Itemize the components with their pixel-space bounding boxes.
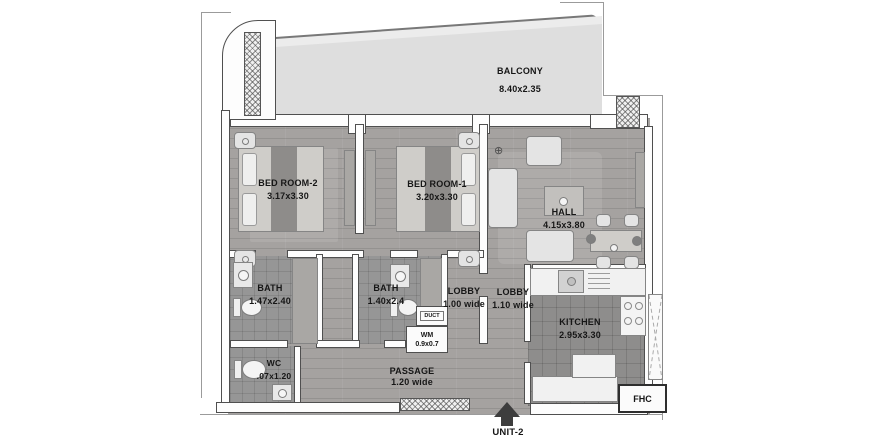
fhc-box: FHC bbox=[618, 384, 667, 413]
lobby2-label: LOBBY 1.10 wide bbox=[492, 287, 534, 310]
toilet-icon bbox=[233, 298, 241, 317]
entrance-mat bbox=[400, 398, 470, 411]
plant-icon bbox=[632, 236, 642, 246]
boundary-line bbox=[560, 2, 604, 3]
bedroom1-label: BED ROOM-1 3.20x3.30 bbox=[407, 179, 467, 202]
balcony-area bbox=[232, 14, 602, 118]
room-dims: 3.20x3.30 bbox=[407, 192, 467, 202]
room-dims: 3.17x3.30 bbox=[258, 191, 318, 201]
lobby1-label: LOBBY 1.00 wide bbox=[443, 286, 485, 309]
room-name: LOBBY bbox=[443, 286, 485, 296]
bedroom2-label: BED ROOM-2 3.17x3.30 bbox=[258, 178, 318, 201]
entrance-arrow-icon bbox=[494, 402, 520, 417]
room-name: BED ROOM-2 bbox=[258, 178, 318, 188]
duct-label: DUCT bbox=[420, 311, 443, 321]
sofa-icon bbox=[488, 168, 518, 228]
wall bbox=[355, 124, 364, 234]
kitchen-island bbox=[572, 354, 616, 378]
room-name: KITCHEN bbox=[559, 317, 601, 327]
room-dims: 1.20 wide bbox=[390, 377, 435, 387]
ac-vent-icon: ⊕ bbox=[494, 146, 503, 157]
floor-plan: BALCONY 8.40x2.35 bbox=[0, 0, 890, 440]
room-name: LOBBY bbox=[492, 287, 534, 297]
kitchen-counter bbox=[532, 376, 618, 402]
room-dims: 1.47x2.40 bbox=[249, 296, 291, 306]
wm-label: WM bbox=[421, 331, 433, 340]
wardrobe-icon bbox=[344, 150, 355, 226]
room-dims: 1.00 wide bbox=[443, 299, 485, 309]
nightstand-icon bbox=[234, 132, 256, 149]
wc-label: WC .07x1.20 bbox=[257, 358, 292, 381]
boundary-line bbox=[603, 2, 604, 96]
passage-label: PASSAGE 1.20 wide bbox=[390, 366, 435, 387]
room-dims: .07x1.20 bbox=[257, 371, 292, 381]
column-hatch bbox=[244, 32, 261, 116]
dining-chair-icon bbox=[624, 214, 639, 227]
wall bbox=[316, 340, 360, 348]
fhc-label: FHC bbox=[633, 394, 652, 404]
room-name: HALL bbox=[543, 207, 585, 217]
kitchen-label: KITCHEN 2.95x3.30 bbox=[559, 317, 601, 340]
shower-icon bbox=[292, 258, 318, 344]
room-name: WC bbox=[257, 358, 292, 368]
sofa-icon bbox=[526, 230, 574, 262]
unit-label: UNIT-2 bbox=[492, 428, 523, 438]
wall bbox=[524, 362, 531, 404]
room-dims: 1.40x2.4 bbox=[368, 296, 405, 306]
wall bbox=[230, 114, 604, 127]
dining-chair-icon bbox=[596, 214, 611, 227]
room-dims: 8.40x2.35 bbox=[497, 84, 543, 94]
wall bbox=[352, 254, 359, 344]
armchair-icon bbox=[526, 136, 562, 166]
entrance-arrow-icon bbox=[501, 417, 513, 426]
wall bbox=[221, 110, 230, 406]
room-dims: 2.95x3.30 bbox=[559, 330, 601, 340]
drainboard-icon bbox=[588, 273, 610, 291]
kitchen-sink-icon bbox=[558, 270, 584, 293]
boundary-line bbox=[201, 12, 202, 398]
nightstand-icon bbox=[458, 250, 480, 267]
bath2-label: BATH 1.40x2.4 bbox=[368, 283, 405, 306]
room-name: BALCONY bbox=[497, 66, 543, 76]
wardrobe-icon bbox=[365, 150, 376, 226]
wall bbox=[230, 340, 288, 348]
wall bbox=[390, 250, 418, 258]
room-dims: 4.15x3.80 bbox=[543, 220, 585, 230]
duct-box: DUCT bbox=[416, 306, 448, 326]
shaft-x-icon bbox=[648, 294, 663, 380]
wall bbox=[216, 402, 400, 413]
room-dims: 1.10 wide bbox=[492, 300, 534, 310]
room-name: PASSAGE bbox=[390, 366, 435, 376]
unit-name: UNIT-2 bbox=[492, 428, 523, 438]
balcony-label: BALCONY 8.40x2.35 bbox=[497, 66, 543, 94]
room-name: BED ROOM-1 bbox=[407, 179, 467, 189]
stove-icon bbox=[620, 296, 646, 336]
boundary-line bbox=[201, 12, 231, 13]
cup-icon bbox=[610, 244, 618, 252]
tv-console-icon bbox=[635, 152, 645, 208]
column-hatch bbox=[616, 96, 640, 128]
washing-machine-box: WM 0.9x0.7 bbox=[406, 326, 448, 353]
wall bbox=[384, 340, 406, 348]
wall bbox=[294, 346, 301, 404]
plant-icon bbox=[586, 234, 596, 244]
bath1-label: BATH 1.47x2.40 bbox=[249, 283, 291, 306]
hall-label: HALL 4.15x3.80 bbox=[543, 207, 585, 230]
sink-icon bbox=[272, 384, 292, 401]
nightstand-icon bbox=[458, 132, 480, 149]
toilet-icon bbox=[234, 360, 242, 379]
wm-dims: 0.9x0.7 bbox=[415, 340, 438, 349]
room-name: BATH bbox=[249, 283, 291, 293]
room-name: BATH bbox=[368, 283, 405, 293]
